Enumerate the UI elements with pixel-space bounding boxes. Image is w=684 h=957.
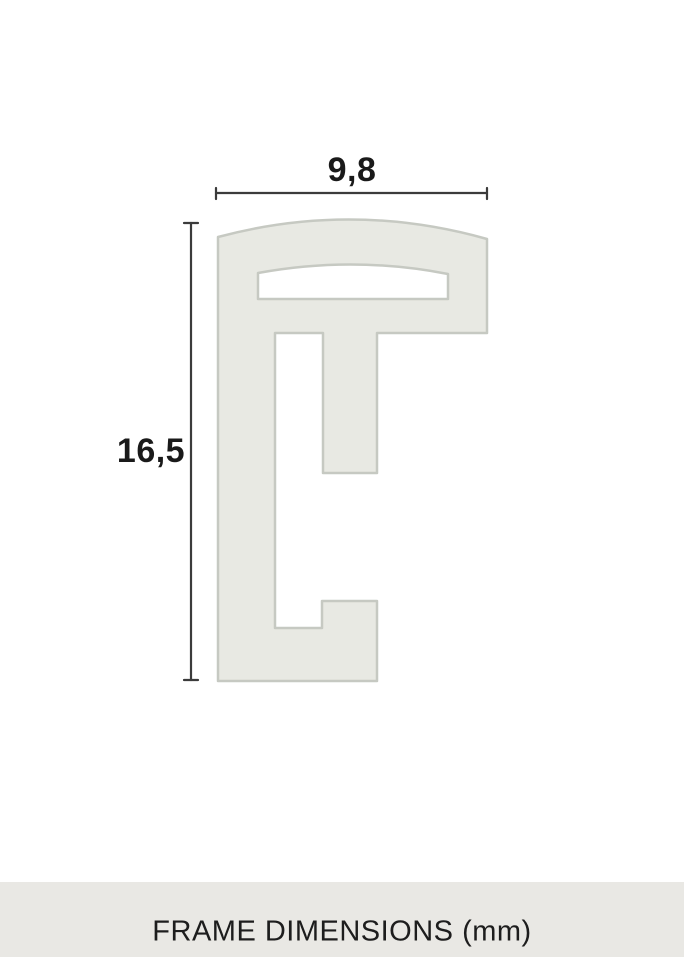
- width-dimension: [216, 188, 487, 199]
- footer-caption-text: FRAME DIMENSIONS (mm): [152, 918, 531, 947]
- frame-profile-shape: [218, 219, 487, 681]
- footer-caption-bar: FRAME DIMENSIONS (mm): [0, 882, 684, 957]
- width-dimension-label: 9,8: [328, 153, 377, 187]
- frame-dimensions-diagram: 9,8 16,5 FRAME DIMENSIONS (mm): [0, 0, 684, 957]
- profile-drawing-svg: [0, 0, 684, 957]
- height-dimension: [184, 223, 198, 680]
- height-dimension-label: 16,5: [117, 434, 185, 468]
